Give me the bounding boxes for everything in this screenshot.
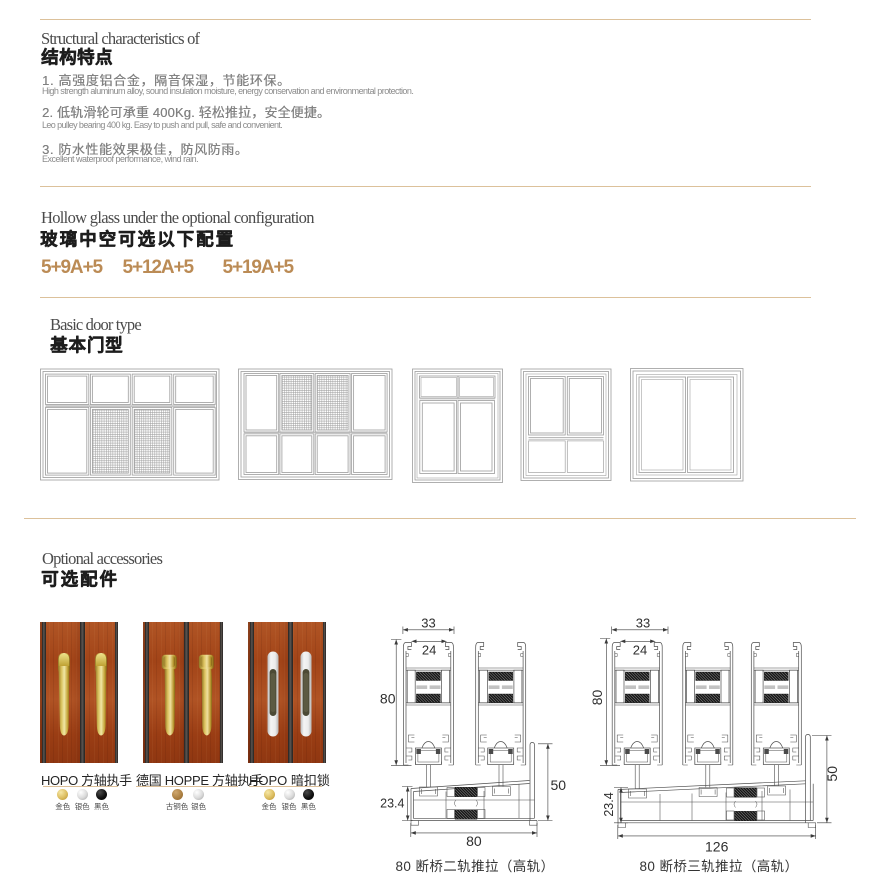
svg-text:33: 33 [636, 615, 650, 630]
svg-text:50: 50 [824, 766, 840, 782]
svg-text:50: 50 [551, 777, 567, 793]
svg-text:24: 24 [633, 642, 647, 657]
svg-text:80: 80 [466, 833, 482, 849]
svg-text:23.4: 23.4 [602, 792, 616, 816]
svg-text:33: 33 [421, 615, 435, 630]
svg-text:23.4: 23.4 [380, 797, 404, 811]
svg-text:80: 80 [589, 690, 605, 706]
svg-text:80: 80 [380, 691, 396, 707]
svg-text:24: 24 [422, 642, 436, 657]
svg-text:126: 126 [705, 839, 729, 855]
